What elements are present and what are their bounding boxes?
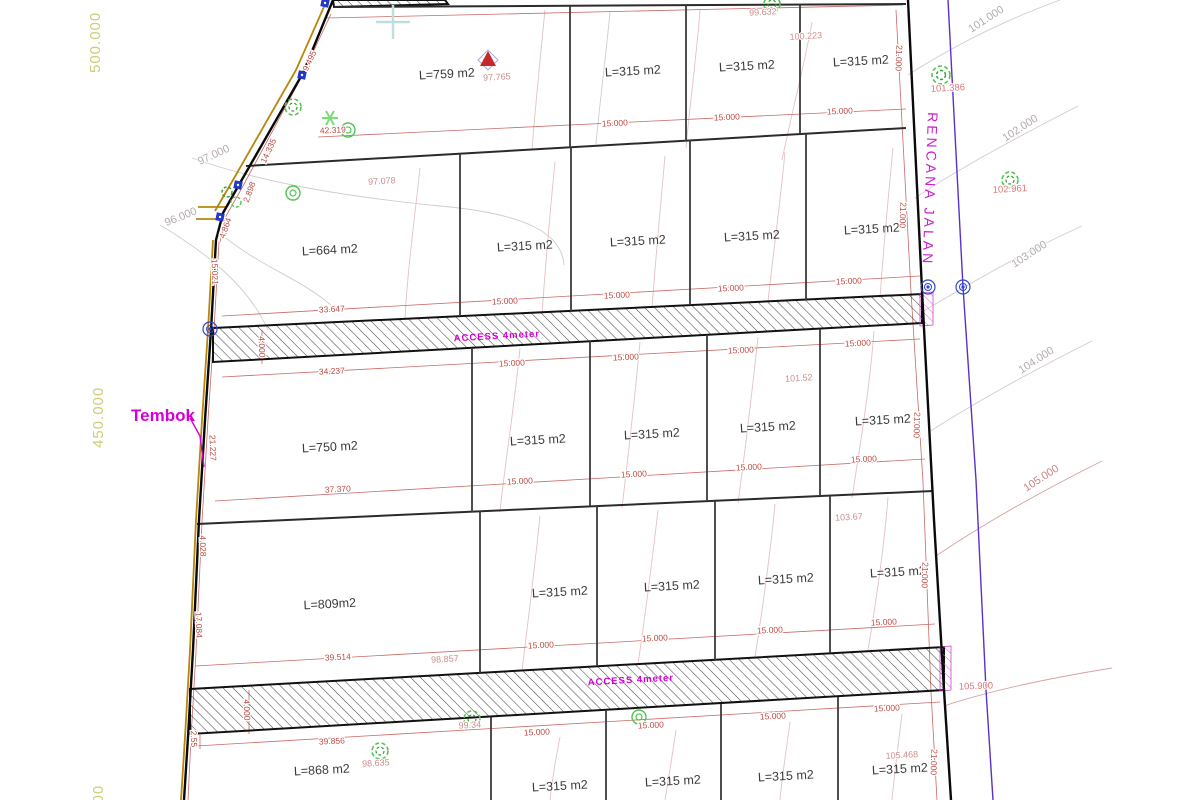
dim-label: 15.000 xyxy=(621,468,648,479)
plot-area-label: L=315 m2 xyxy=(757,768,814,785)
contour-label: 96.000 xyxy=(163,205,199,229)
plot-area-label: L=315 m2 xyxy=(757,571,814,588)
plot-area-label: L=315 m2 xyxy=(871,761,928,778)
contour-label: 100.223 xyxy=(789,30,822,42)
dim-label: 15.000 xyxy=(613,351,640,362)
dim-label: 17.084 xyxy=(194,612,205,639)
contour-label: 99.632 xyxy=(749,6,777,17)
dim-label: 15.000 xyxy=(507,475,534,486)
plot-area-label: L=315 m2 xyxy=(609,233,666,250)
contour-label: 102.961 xyxy=(992,183,1027,196)
contour-label: 97.078 xyxy=(368,175,396,186)
site-plan-canvas: 500.000 450.000 400.000 L=759 m2 L=315 m… xyxy=(0,0,1200,800)
plot-area-label: L=315 m2 xyxy=(623,426,680,443)
contour-label: 103.67 xyxy=(835,511,863,522)
dim-label: 21.000 xyxy=(929,749,940,776)
contour-label: 105.900 xyxy=(959,680,994,692)
cross-marker-icon xyxy=(376,5,410,39)
dim-label: 4.028 xyxy=(198,535,209,557)
benchmark-triangle-icon xyxy=(478,50,498,70)
tree-icons xyxy=(222,0,1018,759)
dim-label: 21.000 xyxy=(894,45,905,72)
dim-label: 15.000 xyxy=(638,719,665,730)
dim-label: 34.237 xyxy=(319,365,346,376)
contour-label: 98.857 xyxy=(431,653,459,664)
contour-label: 101.52 xyxy=(785,372,813,383)
plot-area-label: L=315 m2 xyxy=(843,221,900,238)
dim-label: 33.647 xyxy=(319,303,346,314)
plot-area-label: L=315 m2 xyxy=(531,584,588,601)
dim-label: 15.000 xyxy=(604,289,631,300)
plot-area-label: L=759 m2 xyxy=(418,66,475,83)
dim-label: 4.000 xyxy=(242,699,253,721)
dim-label: 15.000 xyxy=(642,632,669,643)
ring-marker-icons xyxy=(286,123,646,724)
plot-area-label: L=315 m2 xyxy=(739,419,796,436)
dim-label: 15.000 xyxy=(874,702,901,713)
dim-label: 2.55 xyxy=(189,730,200,747)
plot-area-label: L=750 m2 xyxy=(301,439,358,456)
contour-label: 104.000 xyxy=(1016,345,1056,377)
plot-area-label: L=315 m2 xyxy=(644,773,701,790)
dim-label: 2.898 xyxy=(241,180,258,204)
dim-label: 15.000 xyxy=(871,616,898,627)
contour-label: 99.34 xyxy=(458,719,481,730)
dim-label: 15.000 xyxy=(827,105,854,116)
plot-area-label: L=315 m2 xyxy=(718,58,775,75)
contour-label: 103.000 xyxy=(1009,239,1049,271)
plot-area-label: L=315 m2 xyxy=(854,412,911,429)
plot-area-label: L=315 m2 xyxy=(643,578,700,595)
dim-label: 39.514 xyxy=(325,651,352,662)
dim-label: 21.000 xyxy=(920,562,931,589)
dim-label: 15.000 xyxy=(760,710,787,721)
dim-label: 15.000 xyxy=(757,624,784,635)
dim-label: 15.000 xyxy=(845,337,872,348)
plot-area-label: L=315 m2 xyxy=(832,53,889,70)
road-name-label: RENCANA JALAN xyxy=(920,112,941,267)
plot-area-label: L=315 m2 xyxy=(604,63,661,80)
dim-label: 4.000 xyxy=(257,336,268,358)
plot-area-label: L=315 m2 xyxy=(869,564,926,581)
wall-label: Tembok xyxy=(131,406,195,425)
contour-label: 97.765 xyxy=(483,71,511,82)
contour-label: 98.635 xyxy=(362,757,390,768)
plot-area-label: L=315 m2 xyxy=(723,228,780,245)
dim-label: 15.000 xyxy=(602,117,629,128)
plot-area-label: L=315 m2 xyxy=(496,238,553,255)
dim-label: 15.000 xyxy=(528,639,555,650)
dim-label: 21.000 xyxy=(912,412,923,439)
dim-label: 42.319 xyxy=(320,124,347,135)
dim-label: 39.856 xyxy=(319,735,346,746)
plot-area-label: L=868 m2 xyxy=(293,762,350,779)
dim-label: 15.000 xyxy=(718,282,745,293)
dim-label: 14.335 xyxy=(258,137,278,165)
plot-area-label: L=315 m2 xyxy=(531,778,588,795)
dim-label: 15.000 xyxy=(736,461,763,472)
dim-label: 15.000 xyxy=(499,357,526,368)
contour-label: 101.000 xyxy=(966,4,1006,36)
dim-label: 15.000 xyxy=(851,453,878,464)
dim-label: 37.370 xyxy=(325,483,352,494)
wall-line-olive xyxy=(181,0,327,800)
dim-label: 15.021 xyxy=(210,259,221,286)
plot-area-label: L=809m2 xyxy=(303,596,356,613)
dim-label: 15.000 xyxy=(492,295,519,306)
grid-label-450: 450.000 xyxy=(90,387,107,448)
grid-label-500: 500.000 xyxy=(87,12,104,73)
contour-label: 105.000 xyxy=(1021,463,1061,495)
contour-label: 105.468 xyxy=(885,749,918,761)
left-boundary-line xyxy=(184,0,333,800)
contour-label: 101.386 xyxy=(930,82,965,95)
dim-label: 15.000 xyxy=(714,111,741,122)
dim-label: 15.000 xyxy=(728,344,755,355)
plot-area-label: L=664 m2 xyxy=(301,242,358,259)
dim-label: 15.000 xyxy=(836,275,863,286)
contour-label: 97.000 xyxy=(196,143,232,168)
plot-area-label: L=315 m2 xyxy=(509,432,566,449)
dim-label: 15.000 xyxy=(524,726,551,737)
grid-label-400: 400.000 xyxy=(90,785,107,800)
dim-label: 21.227 xyxy=(208,435,219,462)
asterisk-icon xyxy=(322,111,338,125)
dim-label: 21.000 xyxy=(898,202,909,229)
